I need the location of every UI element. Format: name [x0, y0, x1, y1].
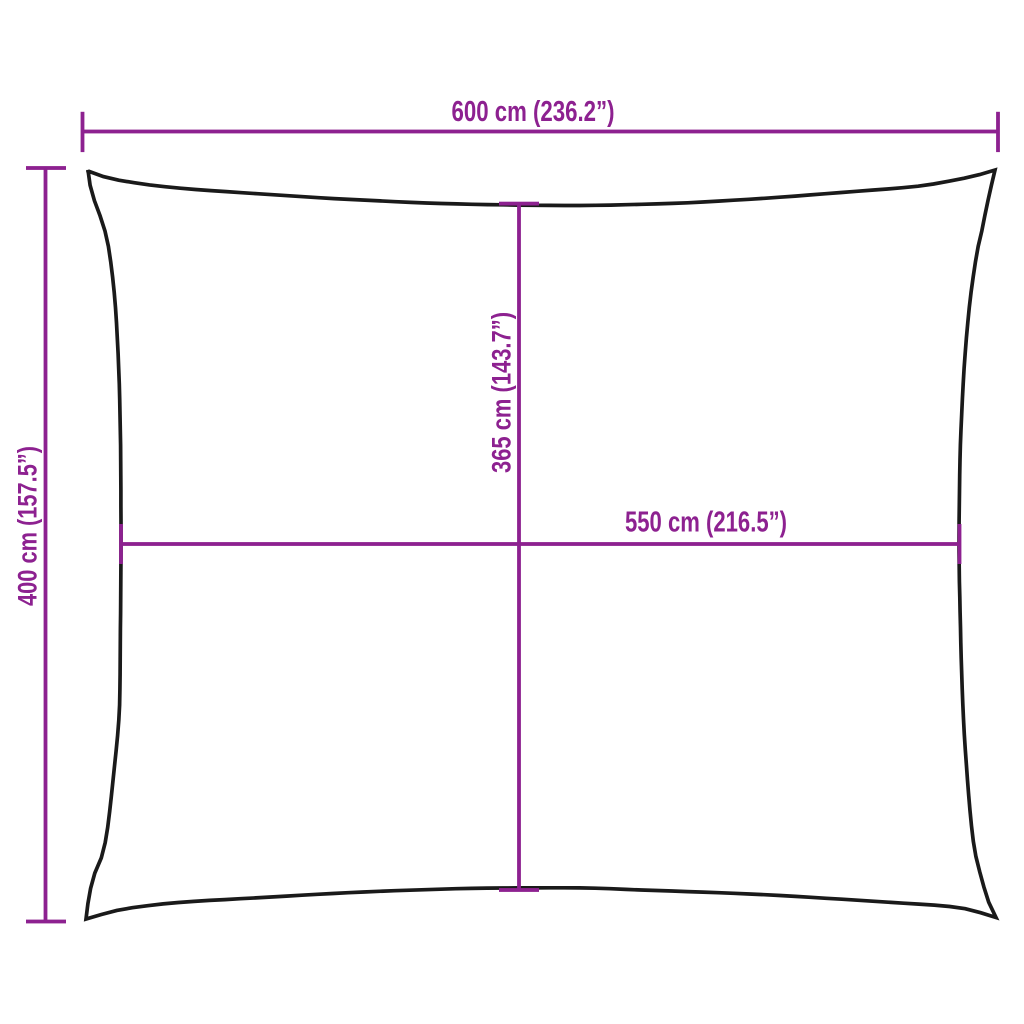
svg-text:550 cm (216.5”): 550 cm (216.5”)	[625, 507, 787, 539]
svg-text:400 cm (157.5”): 400 cm (157.5”)	[13, 446, 43, 606]
svg-text:600 cm (236.2”): 600 cm (236.2”)	[452, 96, 615, 128]
svg-text:365 cm (143.7”): 365 cm (143.7”)	[487, 312, 517, 473]
